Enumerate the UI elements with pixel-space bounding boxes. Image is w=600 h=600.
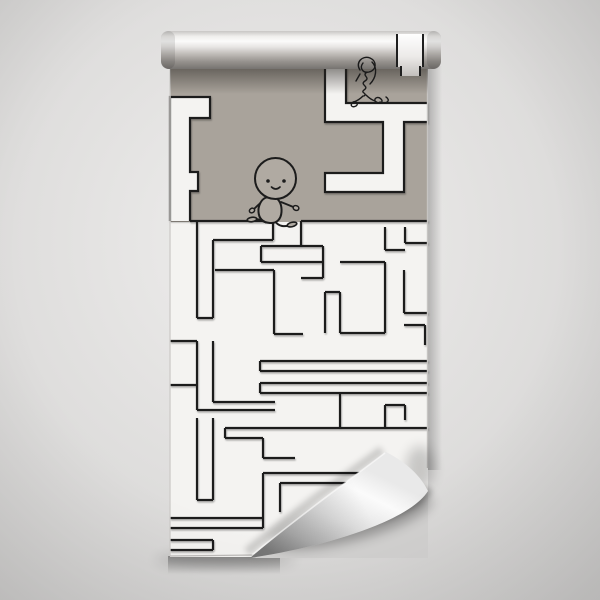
mockup-scene [0,0,600,600]
vignette [0,0,600,600]
mockup-stage [0,0,600,600]
